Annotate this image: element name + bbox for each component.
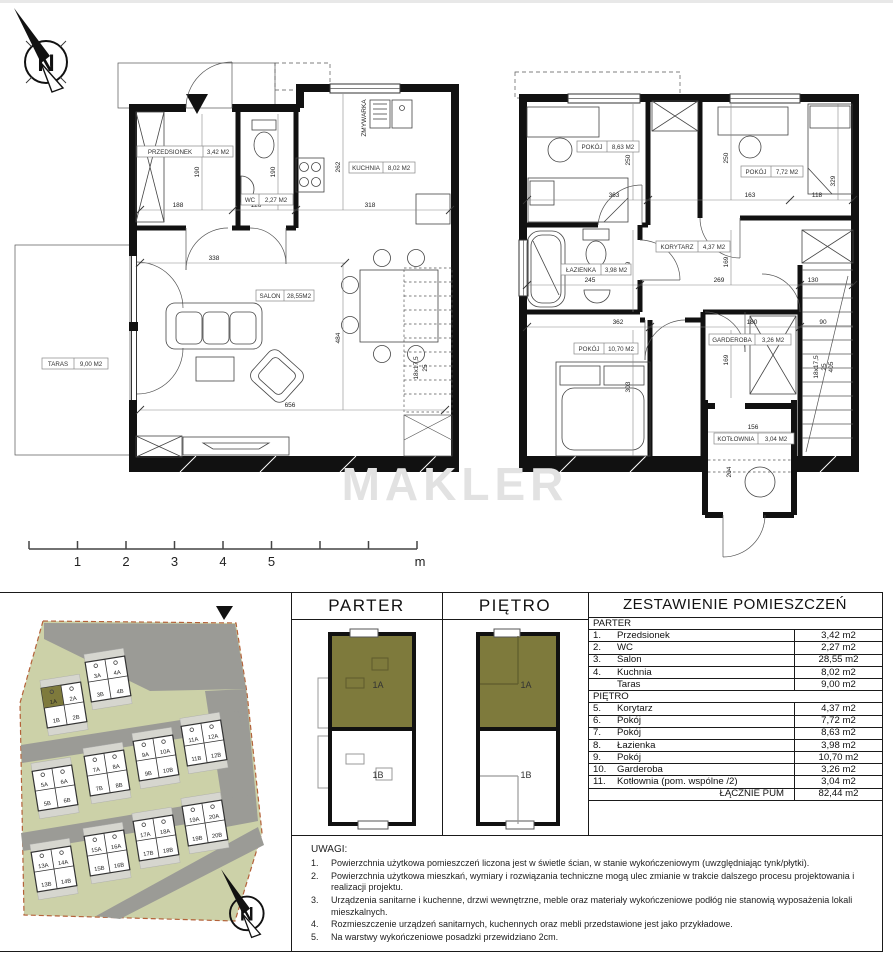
floor-plan-sheet: N [0, 0, 893, 960]
svg-text:484: 484 [335, 332, 342, 343]
room-label-salon: SALON 28,55M2 [256, 290, 314, 301]
svg-text:405: 405 [828, 361, 835, 372]
svg-text:8A: 8A [112, 764, 120, 771]
room-label-taras: TARAS 9,00 M2 [42, 358, 108, 369]
site-block: 17A 18A 17B 18B [132, 807, 180, 869]
room-label-kotlownia: KOTŁOWNIA 3,04 M2 [714, 433, 794, 444]
svg-text:204: 204 [726, 466, 733, 477]
notes-section: UWAGI: 1. Powierzchnia użytkowa pomieszc… [291, 835, 882, 952]
note-item: 2. Powierzchnia użytkowa mieszkań, wymia… [311, 871, 868, 894]
ff-dimensions: 363 163 118 250 250 329 245 169 269 169 … [523, 104, 857, 456]
svg-text:250: 250 [625, 154, 632, 165]
note-item: 4. Rozmieszczenie urządzeń sanitarnych, … [311, 919, 868, 931]
dining-table-icon [342, 250, 439, 363]
svg-text:8B: 8B [115, 783, 123, 790]
site-block: 7A 8A 7B 8B [83, 742, 131, 804]
tv-cabinet-icon [183, 437, 289, 455]
site-block: 11A 12A 11B 12B [180, 712, 228, 774]
washbasin-icon [584, 290, 610, 303]
svg-text:4: 4 [219, 554, 226, 569]
svg-text:250: 250 [723, 152, 730, 163]
fridge-icon [416, 194, 450, 224]
svg-text:KOTŁOWNIA: KOTŁOWNIA [717, 436, 755, 443]
svg-text:25: 25 [422, 364, 429, 372]
terrace-glass-door [129, 256, 183, 400]
svg-text:169: 169 [723, 256, 730, 267]
svg-text:169: 169 [723, 354, 730, 365]
svg-text:3: 3 [171, 554, 178, 569]
sofa-icon [166, 303, 262, 349]
site-block: 1A 2A 1B 2B [40, 674, 88, 736]
room-label-pokoj1: POKÓJ 8,63 M2 [577, 141, 639, 152]
note-item: 1. Powierzchnia użytkowa pomieszczeń lic… [311, 858, 868, 870]
svg-text:8,02 M2: 8,02 M2 [388, 165, 411, 172]
svg-text:9A: 9A [142, 752, 150, 759]
svg-text:188: 188 [173, 202, 184, 209]
room-label-lazienka: ŁAZIENKA 3,98 M2 [561, 264, 631, 275]
svg-text:3,42 M2: 3,42 M2 [207, 149, 230, 156]
svg-text:303: 303 [625, 381, 632, 392]
table-row: 8. Łazienka 3,98 m2 [588, 740, 882, 752]
room-label-przedsionek: PRZEDSIONEK 3,42 M2 [137, 146, 233, 157]
bathtub-icon [527, 231, 565, 307]
svg-text:KUCHNIA: KUCHNIA [352, 165, 381, 172]
svg-text:1B: 1B [52, 718, 60, 725]
room-label-pokoj3: POKÓJ 10,70 M2 [574, 343, 638, 354]
svg-text:PRZEDSIONEK: PRZEDSIONEK [148, 149, 193, 156]
garderoba-shelves [750, 316, 796, 394]
svg-text:6A: 6A [60, 779, 68, 786]
svg-text:KORYTARZ: KORYTARZ [660, 244, 693, 251]
svg-text:2B: 2B [72, 715, 80, 722]
svg-text:N: N [240, 905, 254, 926]
bedroom1-door [598, 185, 642, 225]
svg-text:90: 90 [819, 319, 827, 326]
table-title: ZESTAWIENIE POMIESZCZEŃ [588, 592, 882, 618]
svg-text:SALON: SALON [260, 293, 281, 300]
svg-text:2,27 M2: 2,27 M2 [265, 197, 288, 204]
wardrobe [802, 230, 853, 263]
site-block: 13A 14A 13B 14B [30, 838, 78, 900]
svg-text:6B: 6B [63, 798, 71, 805]
svg-text:POKÓJ: POKÓJ [582, 144, 603, 151]
svg-text:318: 318 [365, 202, 376, 209]
room-label-kuchnia: KUCHNIA 8,02 M2 [349, 162, 415, 173]
stairs: 18x17,5 25 [404, 268, 452, 456]
desk-icon [527, 107, 599, 162]
table-section-row: PARTER [588, 618, 882, 630]
unit-1a-label: 1A [520, 680, 531, 690]
coffee-table-icon [196, 357, 234, 381]
svg-text:245: 245 [585, 277, 596, 284]
svg-text:POKÓJ: POKÓJ [579, 346, 600, 353]
svg-text:118: 118 [812, 192, 823, 199]
svg-text:5B: 5B [43, 801, 51, 808]
site-block: 9A 10A 9B 10B [132, 727, 180, 789]
room-label-pokoj2: POKÓJ 7,72 M2 [741, 166, 803, 177]
unit-1b-label: 1B [372, 770, 383, 780]
svg-text:3,26 M2: 3,26 M2 [762, 337, 785, 344]
boiler-room: 156 204 [705, 400, 794, 557]
svg-text:262: 262 [335, 161, 342, 172]
svg-text:25: 25 [821, 363, 828, 371]
svg-text:3A: 3A [94, 673, 102, 680]
compass-letter: N [37, 50, 54, 77]
boiler-icon [745, 467, 775, 497]
svg-text:ŁAZIENKA: ŁAZIENKA [566, 267, 597, 274]
divider [291, 619, 588, 620]
stairs: 18x17,5 25 405 [762, 270, 853, 452]
svg-text:130: 130 [808, 277, 819, 284]
note-item: 3. Urządzenia sanitarne i kuchenne, drzw… [311, 895, 868, 918]
double-bed-icon [556, 362, 650, 456]
svg-text:5A: 5A [41, 782, 49, 789]
svg-text:18x17,5: 18x17,5 [813, 355, 820, 379]
north-arrow-icon: N [14, 8, 67, 92]
svg-text:4,37 M2: 4,37 M2 [703, 244, 726, 251]
cabinet [136, 436, 182, 457]
table-total-row: ŁĄCZNIE PUM 82,44 m2 [588, 789, 882, 801]
table-row: 7. Pokój 8,63 m2 [588, 728, 882, 740]
site-block: 5A 6A 5B 6B [31, 757, 79, 819]
kitchen-sink [370, 100, 412, 128]
toilet-icon [583, 229, 609, 267]
entrance-marker-icon [186, 94, 208, 114]
site-block: 15A 16A 15B 16B [83, 822, 131, 884]
svg-text:WC: WC [245, 197, 256, 204]
svg-text:5: 5 [268, 554, 275, 569]
table-row: 11. Kotłownia (pom. wspólne /2) 3,04 m2 [588, 776, 882, 788]
table-row: 1. Przedsionek 3,42 m2 [588, 630, 882, 642]
wardrobe [652, 101, 698, 131]
wardrobe [136, 112, 164, 222]
pietro-key-thumbnail: 1A 1B [470, 626, 566, 832]
svg-text:9B: 9B [144, 771, 152, 778]
kitchen-window [330, 84, 400, 93]
room-schedule-table: ZESTAWIENIE POMIESZCZEŃ PARTER 1. Przeds… [588, 592, 882, 801]
svg-text:9,00 M2: 9,00 M2 [80, 361, 103, 368]
svg-text:GARDEROBA: GARDEROBA [712, 337, 752, 344]
svg-text:3,04 M2: 3,04 M2 [765, 436, 788, 443]
table-row: 3. Salon 28,55 m2 [588, 655, 882, 667]
svg-text:163: 163 [745, 192, 756, 199]
parter-header: PARTER [291, 592, 442, 619]
table-row: 2. WC 2,27 m2 [588, 642, 882, 654]
svg-text:1: 1 [74, 554, 81, 569]
svg-text:10,70 M2: 10,70 M2 [608, 346, 634, 353]
svg-text:TARAS: TARAS [48, 361, 68, 368]
scale-bar: 1 2 3 4 5 m [29, 541, 425, 569]
svg-text:4B: 4B [116, 689, 124, 696]
room-label-korytarz: KORYTARZ 4,37 M2 [656, 241, 730, 252]
dishwasher-label: ZMYWARKA [361, 99, 368, 137]
svg-text:2: 2 [122, 554, 129, 569]
svg-text:28,55M2: 28,55M2 [287, 293, 312, 300]
svg-text:7A: 7A [93, 767, 101, 774]
unit-1b-label: 1B [520, 770, 531, 780]
svg-text:4A: 4A [113, 670, 121, 677]
svg-text:190: 190 [270, 166, 277, 177]
wc-door [250, 228, 286, 264]
table-section-row: PIĘTRO [588, 691, 882, 703]
site-plan: 1A 2A 1B 2B 3A 4A 3B 4B [0, 583, 291, 960]
svg-text:8,63 M2: 8,63 M2 [612, 144, 635, 151]
svg-text:3B: 3B [96, 692, 104, 699]
svg-text:7,72 M2: 7,72 M2 [776, 169, 799, 176]
room-label-wc: WC 2,27 M2 [241, 194, 293, 205]
table-row: 10. Garderoba 3,26 m2 [588, 764, 882, 776]
svg-text:190: 190 [194, 166, 201, 177]
armchair-icon [247, 346, 306, 405]
notes-title: UWAGI: [311, 844, 868, 855]
room-label-garderoba: GARDEROBA 3,26 M2 [709, 334, 791, 345]
floor-plans-drawing: N [0, 0, 893, 583]
svg-text:363: 363 [609, 192, 620, 199]
table-row: Taras 9,00 m2 [588, 679, 882, 691]
note-item: 5. Na warstwy wykończeniowe posadzki prz… [311, 932, 868, 944]
svg-text:362: 362 [613, 319, 624, 326]
site-block: 19A 20A 19B 20B [181, 792, 229, 854]
site-block: 3A 4A 3B 4B [84, 648, 132, 710]
svg-text:POKÓJ: POKÓJ [746, 169, 767, 176]
entrance-door [186, 62, 232, 114]
svg-text:m: m [415, 554, 426, 569]
svg-text:7B: 7B [95, 786, 103, 793]
toilet-icon [252, 120, 276, 158]
svg-text:1A: 1A [50, 699, 58, 706]
desk-icon [718, 107, 788, 158]
pietro-header: PIĘTRO [442, 592, 588, 619]
ground-floor-plan: ZMYWARKA [15, 62, 459, 472]
svg-text:338: 338 [209, 255, 220, 262]
svg-text:180: 180 [747, 319, 758, 326]
parter-key-thumbnail: 1A 1B [316, 626, 428, 832]
svg-text:18x17,5: 18x17,5 [413, 356, 420, 380]
svg-text:2A: 2A [69, 696, 77, 703]
table-row: 5. Korytarz 4,37 m2 [588, 703, 882, 715]
table-row: 9. Pokój 10,70 m2 [588, 752, 882, 764]
divider [442, 592, 443, 835]
svg-text:269: 269 [714, 277, 725, 284]
hob-icon [296, 158, 324, 192]
hall-door [186, 228, 228, 270]
svg-text:329: 329 [830, 175, 837, 186]
garderoba-door [705, 312, 745, 352]
divider [882, 592, 883, 952]
table-row: 6. Pokój 7,72 m2 [588, 716, 882, 728]
table-row: 4. Kuchnia 8,02 m2 [588, 667, 882, 679]
svg-text:3,98 M2: 3,98 M2 [605, 267, 628, 274]
watermark: MAKLER [342, 458, 569, 510]
site-marker-icon [216, 606, 233, 620]
svg-text:656: 656 [285, 402, 296, 409]
unit-1a-label: 1A [372, 680, 383, 690]
svg-text:156: 156 [748, 424, 759, 431]
